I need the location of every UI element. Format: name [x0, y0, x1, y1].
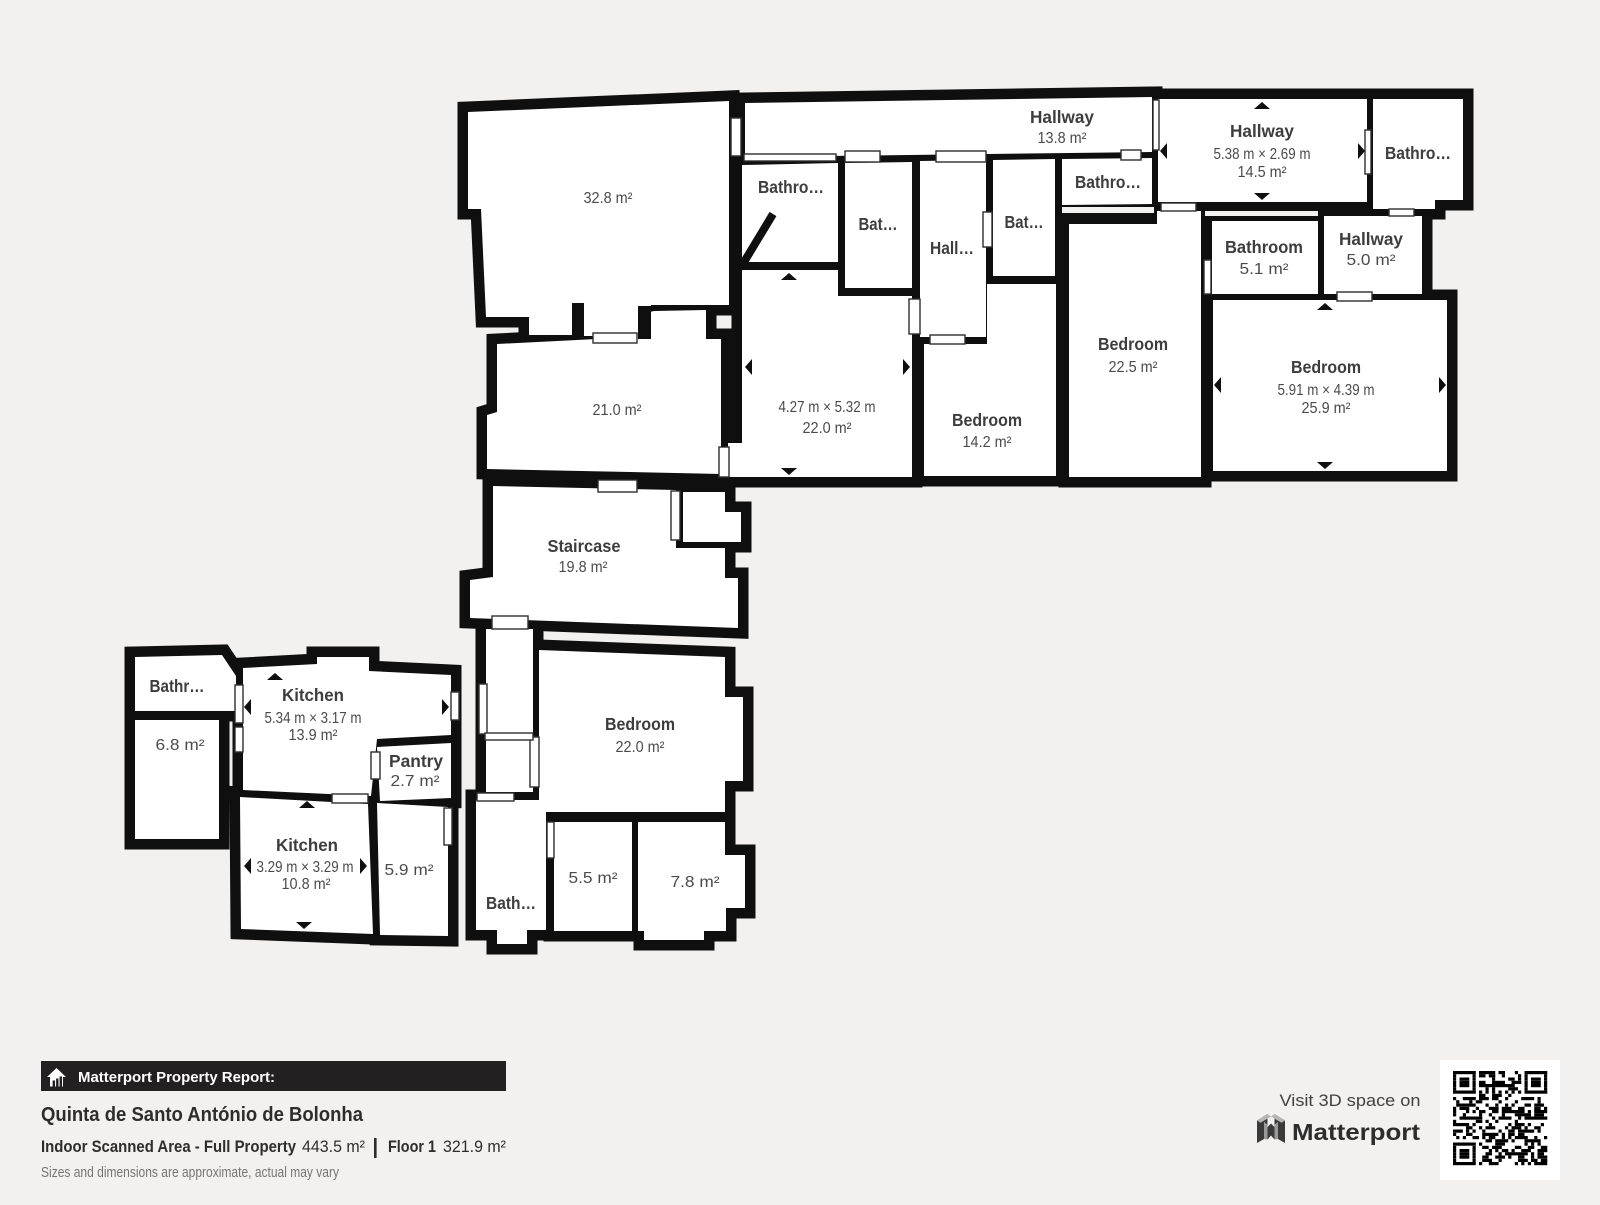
svg-text:Matterport Property Report:: Matterport Property Report: [78, 1069, 275, 1086]
svg-text:Bat…: Bat… [859, 214, 898, 234]
svg-text:22.5 m²: 22.5 m² [1109, 359, 1158, 376]
svg-text:5.38 m × 2.69 m: 5.38 m × 2.69 m [1214, 146, 1311, 163]
svg-text:Bedroom: Bedroom [952, 410, 1022, 430]
svg-text:Pantry: Pantry [389, 751, 443, 771]
svg-text:Matterport: Matterport [1292, 1119, 1420, 1145]
svg-text:22.0 m²: 22.0 m² [616, 739, 665, 756]
svg-text:321.9 m²: 321.9 m² [443, 1138, 506, 1156]
svg-text:Staircase: Staircase [548, 536, 621, 556]
svg-text:Bathroom: Bathroom [1225, 237, 1303, 257]
svg-text:Hallway: Hallway [1339, 229, 1403, 249]
svg-text:Bath…: Bath… [486, 893, 536, 913]
svg-text:14.2 m²: 14.2 m² [963, 434, 1012, 451]
svg-text:Visit 3D space on: Visit 3D space on [1280, 1091, 1421, 1110]
svg-text:Bathr…: Bathr… [150, 676, 205, 696]
svg-text:Kitchen: Kitchen [282, 685, 344, 705]
svg-text:6.8 m²: 6.8 m² [156, 737, 205, 754]
svg-text:Bedroom: Bedroom [605, 714, 675, 734]
svg-text:443.5 m²: 443.5 m² [302, 1138, 365, 1156]
svg-text:5.1 m²: 5.1 m² [1240, 261, 1289, 278]
svg-text:Bat…: Bat… [1005, 212, 1044, 232]
svg-text:5.34 m × 3.17 m: 5.34 m × 3.17 m [265, 710, 362, 727]
svg-text:5.5 m²: 5.5 m² [569, 870, 618, 887]
svg-text:Quinta de Santo António de Bol: Quinta de Santo António de Bolonha [41, 1104, 364, 1126]
svg-text:Kitchen: Kitchen [276, 835, 338, 855]
svg-text:14.5 m²: 14.5 m² [1238, 164, 1287, 181]
svg-text:Bathro…: Bathro… [1075, 172, 1141, 192]
svg-text:4.27 m × 5.32 m: 4.27 m × 5.32 m [779, 399, 876, 416]
svg-text:Bathro…: Bathro… [1385, 143, 1451, 163]
svg-text:Sizes and dimensions are appro: Sizes and dimensions are approximate, ac… [41, 1165, 340, 1181]
svg-text:Bathro…: Bathro… [758, 177, 824, 197]
svg-text:22.0 m²: 22.0 m² [803, 420, 852, 437]
svg-text:Hallway: Hallway [1030, 107, 1094, 127]
svg-text:Indoor Scanned Area - Full Pro: Indoor Scanned Area - Full Property [41, 1138, 297, 1156]
svg-text:5.91 m × 4.39 m: 5.91 m × 4.39 m [1278, 382, 1375, 399]
svg-text:2.7 m²: 2.7 m² [391, 773, 440, 790]
svg-text:32.8 m²: 32.8 m² [584, 190, 633, 207]
svg-text:Floor 1: Floor 1 [388, 1138, 436, 1156]
svg-text:Bedroom: Bedroom [1291, 357, 1361, 377]
svg-text:Hall…: Hall… [930, 238, 974, 258]
svg-text:5.0 m²: 5.0 m² [1347, 252, 1396, 269]
svg-text:Hallway: Hallway [1230, 121, 1294, 141]
svg-text:3.29 m × 3.29 m: 3.29 m × 3.29 m [257, 859, 354, 876]
svg-text:13.9 m²: 13.9 m² [289, 727, 338, 744]
svg-text:Bedroom: Bedroom [1098, 334, 1168, 354]
svg-text:21.0 m²: 21.0 m² [593, 402, 642, 419]
svg-text:7.8 m²: 7.8 m² [671, 874, 720, 891]
svg-text:25.9 m²: 25.9 m² [1302, 400, 1351, 417]
svg-text:5.9 m²: 5.9 m² [385, 862, 434, 879]
svg-text:10.8 m²: 10.8 m² [282, 876, 331, 893]
svg-text:13.8 m²: 13.8 m² [1038, 130, 1087, 147]
svg-text:19.8 m²: 19.8 m² [559, 559, 608, 576]
